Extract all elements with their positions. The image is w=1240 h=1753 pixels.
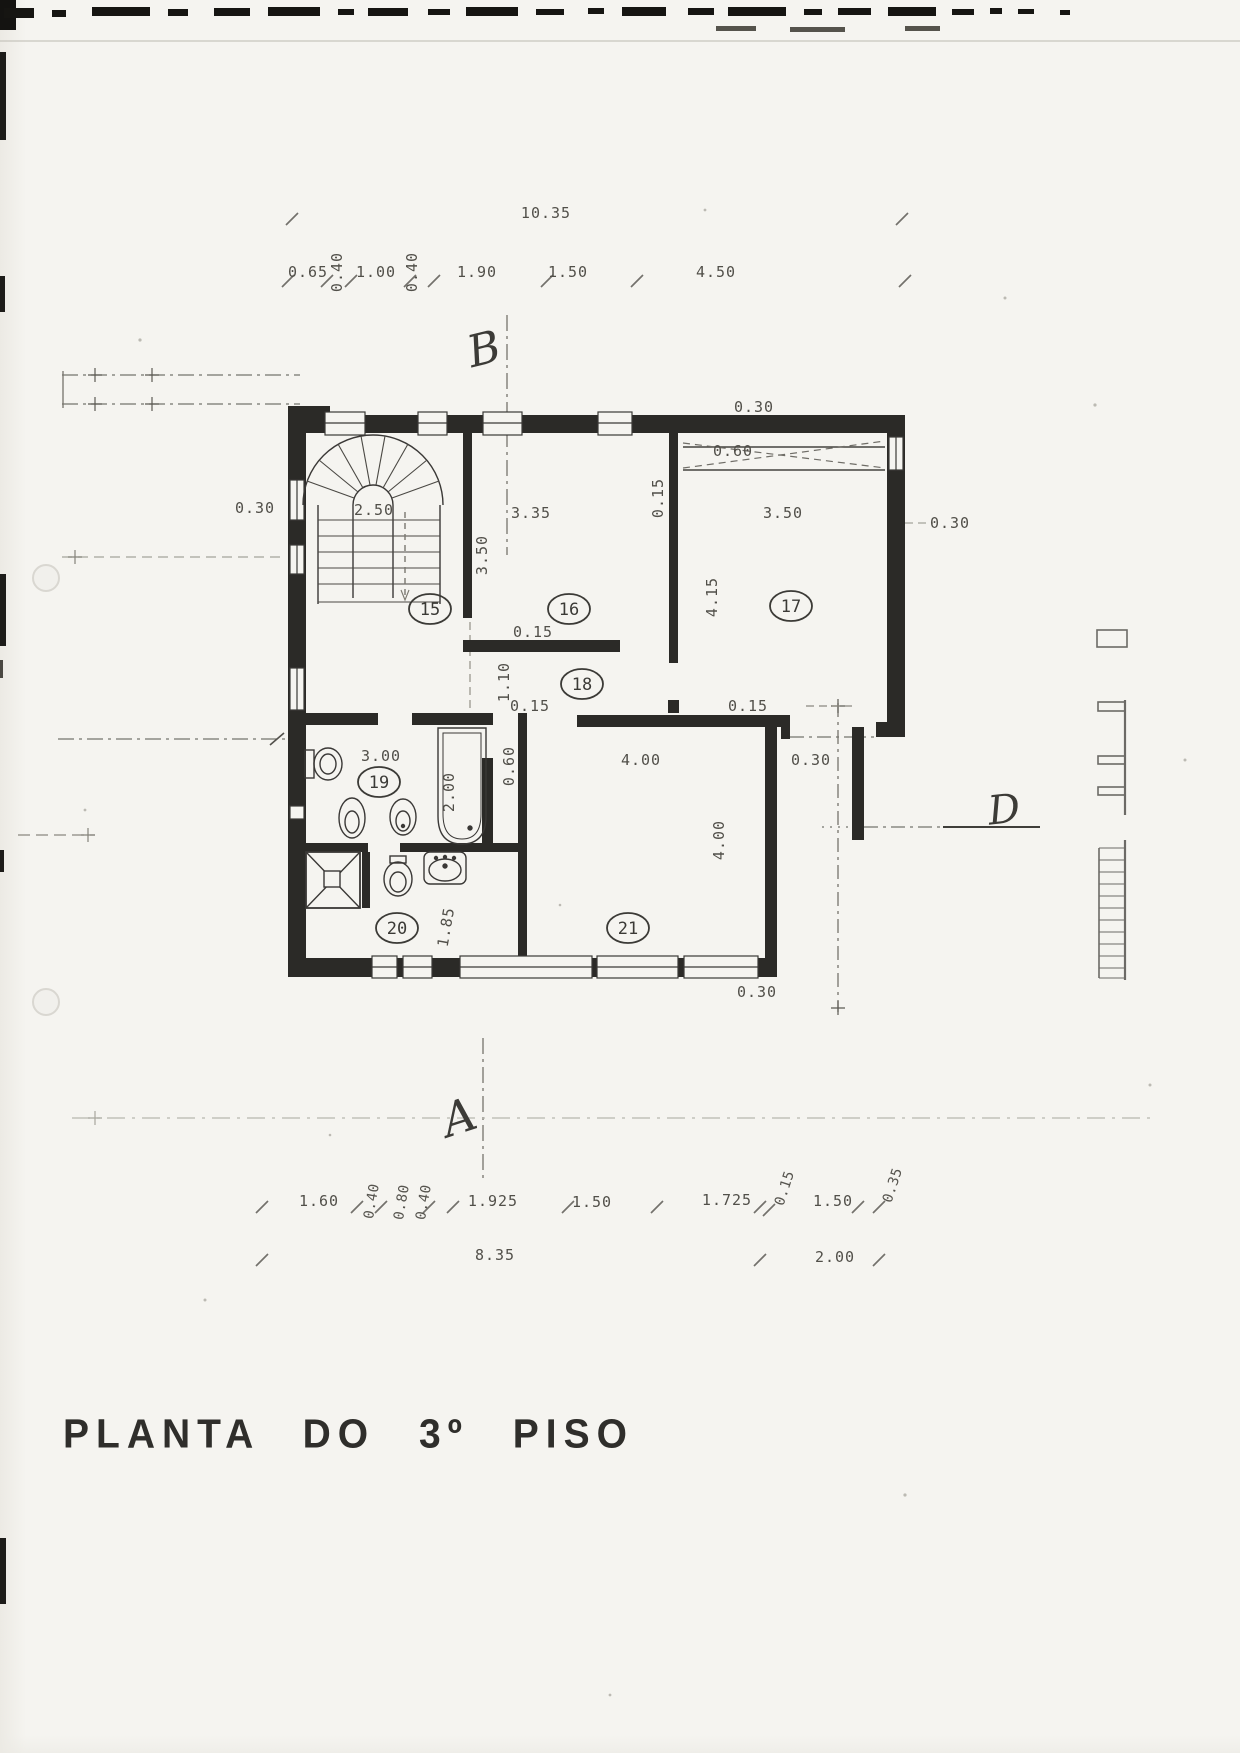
shower-20 [306,852,360,908]
room-label-18: 18 [561,669,603,699]
adjacent-drawing-bleed [1097,630,1127,980]
dim-top-1: 0.40 [328,252,346,292]
section-and-guide-lines [18,315,1150,1182]
partition-19-20-a [306,843,368,852]
window [325,412,365,435]
sink-20 [424,852,466,884]
dim-room21-d: 4.00 [710,820,728,860]
dim-right-wall: 0.30 [930,514,970,532]
dim-wall-under16: 0.15 [513,623,553,641]
window [460,956,592,978]
dimension-ticks [256,213,911,1266]
section-letter-d: D [985,785,1023,834]
dim-wall21-top: 0.15 [728,697,768,715]
hole-punch-top [33,565,59,591]
wc-19 [390,799,416,835]
window [889,437,903,470]
dim-bottom-5: 1.50 [572,1193,612,1211]
dim-bottom-9: 0.35 [880,1166,906,1205]
dim-bottom-0: 1.60 [299,1192,339,1210]
scanner-edge-artifacts [0,0,1240,1604]
drawing-title: PLANTA DO 3º PISO [63,1412,634,1458]
window [403,956,432,978]
dim-bottom-1: 0.40 [361,1182,383,1220]
wall-19-north-a [306,713,378,725]
spiral-staircase [303,435,443,604]
window [372,956,397,978]
dim-top-total: 10.35 [521,204,571,222]
dim-top-4: 1.90 [457,263,497,281]
window [290,668,304,710]
wc-20 [384,856,412,896]
dim-bottom-2: 0.80 [391,1183,413,1221]
dim-part-16-17: 0.15 [649,478,667,518]
walls [288,406,905,977]
wall-19-north-b [412,713,493,725]
room-label-16: 16 [548,594,590,624]
dim-room17-d: 4.15 [703,577,721,617]
svg-text:16: 16 [559,600,579,620]
partition-16-17 [669,433,678,663]
wall-tub-nook [482,758,493,852]
svg-text:21: 21 [618,919,638,939]
wall-21-east [765,715,777,958]
dim-room16-w: 3.35 [511,504,551,522]
hole-punches [33,565,59,1015]
dim-bottom-8: 1.50 [813,1192,853,1210]
dim-top-2: 1.00 [356,263,396,281]
hole-punch-bottom [33,989,59,1015]
dim-top-right-wall: 0.30 [734,398,774,416]
wall-right [887,433,905,737]
dim-niche-w: 0.60 [500,746,518,786]
svg-text:17: 17 [781,597,801,617]
wall-under-16 [463,640,620,652]
dim-room21-w: 4.00 [621,751,661,769]
dim-bottom-total-left: 8.35 [475,1246,515,1264]
dim-bottom-right-wall: 0.30 [737,983,777,1001]
window [483,412,522,435]
wall-top [288,415,905,433]
floor-plan-drawing: 10.35 0.65 0.40 1.00 0.40 1.90 1.50 4.50… [0,0,1240,1753]
wall-21-west [518,713,527,958]
svg-text:19: 19 [369,773,389,793]
room-label-17: 17 [770,591,812,621]
wall-shower [362,852,370,908]
dim-top-0: 0.65 [288,263,328,281]
room-label-20: 20 [376,913,418,943]
dim-bath-w: 3.00 [361,747,401,765]
window [290,806,304,819]
dim-room16-d: 3.50 [473,535,491,575]
svg-text:15: 15 [420,600,440,620]
window [684,956,758,978]
dim-left-wall: 0.30 [235,499,275,517]
dim-bottom-4: 1.925 [468,1192,518,1210]
window [598,412,632,435]
svg-text:20: 20 [387,919,407,939]
dim-top-5: 1.50 [548,263,588,281]
dim-bottom-6: 1.725 [702,1191,752,1209]
dim-wall-under18: 0.15 [510,697,550,715]
room-label-19: 19 [358,767,400,797]
dim-bottom-7: 0.15 [772,1169,798,1208]
room-label-21: 21 [607,913,649,943]
wall-terrace [852,727,864,840]
window [290,545,304,574]
dim-bottom-total-right: 2.00 [815,1248,855,1266]
dim-tub-l: 2.00 [440,772,458,812]
toilet-19 [305,748,342,780]
window [597,956,678,978]
dim-room20-d: 1.85 [434,906,459,949]
dim-door-17: 0.60 [713,442,753,460]
scanned-floor-plan-page: 10.35 0.65 0.40 1.00 0.40 1.90 1.50 4.50… [0,0,1240,1753]
dim-balcony-wall: 0.30 [791,751,831,769]
dim-top-3: 0.40 [403,252,421,292]
dim-bottom-3: 0.40 [413,1183,435,1221]
dim-stair: 2.50 [354,501,394,519]
section-letter-b: B [461,321,506,379]
partition-15-16 [463,433,472,618]
window [418,412,447,435]
wall-21-north [577,715,790,727]
svg-text:18: 18 [572,675,592,695]
bidet-19 [339,798,365,838]
window [290,480,304,520]
dim-room17-w: 3.50 [763,504,803,522]
room-label-15: 15 [409,594,451,624]
dim-top-6: 4.50 [696,263,736,281]
